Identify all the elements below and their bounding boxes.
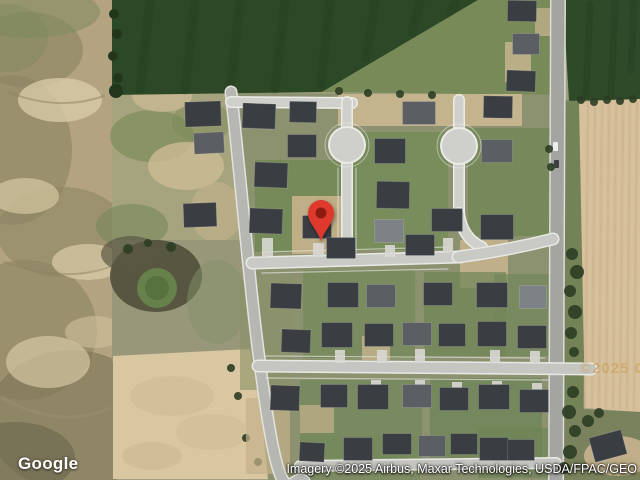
house-roof: [376, 181, 409, 209]
tree: [563, 445, 577, 459]
tree: [566, 248, 578, 260]
rect: [300, 405, 334, 433]
tree: [594, 408, 604, 418]
house-roof: [479, 385, 510, 410]
house-roof: [299, 442, 325, 462]
tree: [569, 347, 579, 357]
tree: [590, 98, 598, 106]
house-roof: [242, 103, 276, 129]
house-roof: [288, 135, 317, 158]
house-roof: [451, 434, 478, 455]
house-roof: [365, 324, 394, 347]
house-roof: [254, 162, 288, 188]
house-roof: [185, 101, 222, 127]
map-pin[interactable]: [304, 199, 338, 243]
house-roof: [321, 385, 348, 408]
ell: [187, 260, 247, 344]
house-roof: [518, 326, 547, 349]
house-roof: [513, 34, 540, 55]
circ: [113, 73, 123, 83]
house-roof: [432, 209, 463, 232]
house-roof: [375, 220, 404, 243]
house-roof: [506, 70, 536, 92]
house-roof: [403, 102, 436, 125]
circ: [109, 9, 119, 19]
ell: [130, 376, 214, 416]
tree: [123, 244, 133, 254]
house-roof: [480, 438, 509, 461]
rect: [415, 349, 425, 362]
street-f: [258, 366, 591, 369]
house-roof: [358, 385, 389, 410]
tree: [364, 89, 372, 97]
house-roof: [403, 385, 432, 408]
rect: [385, 245, 395, 257]
ell: [122, 442, 182, 470]
tree: [565, 327, 577, 339]
house-roof: [367, 285, 396, 308]
house-roof: [344, 438, 373, 461]
house-roof: [477, 283, 508, 308]
house-roof: [520, 390, 549, 413]
cul-de-sac: [440, 127, 478, 165]
tree: [562, 405, 576, 419]
tree: [545, 145, 553, 153]
tree: [567, 386, 579, 398]
house-roof: [419, 436, 446, 457]
ell: [101, 236, 161, 272]
house-roof: [281, 329, 311, 353]
house-roof: [270, 385, 300, 411]
tree: [547, 163, 555, 171]
house-roof: [270, 283, 302, 309]
house-roof: [483, 96, 512, 119]
tree: [568, 305, 582, 319]
pin-body: [308, 200, 334, 241]
rect: [490, 350, 500, 363]
tree: [396, 90, 404, 98]
cul-de-sac: [328, 126, 366, 164]
ell: [176, 414, 248, 450]
tree: [144, 239, 152, 247]
car: [554, 160, 559, 168]
house-roof: [375, 139, 406, 164]
rect: [335, 350, 345, 363]
path: [631, 2, 634, 70]
rect: [377, 350, 387, 363]
path: [450, 2, 455, 14]
tree: [564, 285, 576, 297]
house-roof: [322, 323, 353, 348]
car: [553, 142, 558, 151]
path: [611, 3, 615, 96]
tree: [166, 242, 176, 252]
house-roof: [478, 322, 507, 347]
house-roof: [481, 215, 514, 240]
circ: [145, 276, 169, 300]
tree: [577, 96, 585, 104]
house-roof: [439, 324, 466, 347]
circ: [227, 364, 235, 372]
circ: [234, 392, 242, 400]
house-roof: [440, 388, 469, 411]
circ: [112, 29, 122, 39]
tree: [428, 91, 436, 99]
attribution-text: Imagery ©2025 Airbus, Maxar Technologies…: [286, 462, 637, 476]
tree: [335, 87, 343, 95]
house-roof: [424, 283, 453, 306]
tree: [569, 425, 581, 437]
tree: [603, 96, 611, 104]
house-roof: [406, 235, 435, 256]
rect: [313, 243, 324, 257]
tree: [582, 415, 594, 427]
house-roof: [482, 140, 513, 163]
house-roof: [403, 323, 432, 346]
house-roof: [328, 283, 359, 308]
circ: [109, 84, 123, 98]
google-logo[interactable]: Google: [18, 454, 78, 474]
house-roof: [383, 434, 412, 455]
rect: [262, 238, 273, 256]
imagery-watermark: ©2025 Google: [580, 360, 640, 377]
tree: [570, 265, 584, 279]
house-roof: [289, 101, 316, 122]
rect: [530, 351, 540, 364]
house-roof: [183, 202, 217, 227]
pin-dot: [316, 208, 327, 219]
house-roof: [193, 132, 224, 155]
house-roof: [249, 208, 283, 234]
satellite-map[interactable]: ©2025 Google Google Imagery ©2025 Airbus…: [0, 0, 640, 480]
house-roof: [508, 440, 535, 461]
circ: [108, 51, 118, 61]
rect: [443, 238, 453, 252]
tree: [629, 95, 637, 103]
house-roof: [520, 286, 547, 309]
path: [586, 5, 590, 95]
tree: [616, 97, 624, 105]
house-roof: [507, 0, 536, 22]
